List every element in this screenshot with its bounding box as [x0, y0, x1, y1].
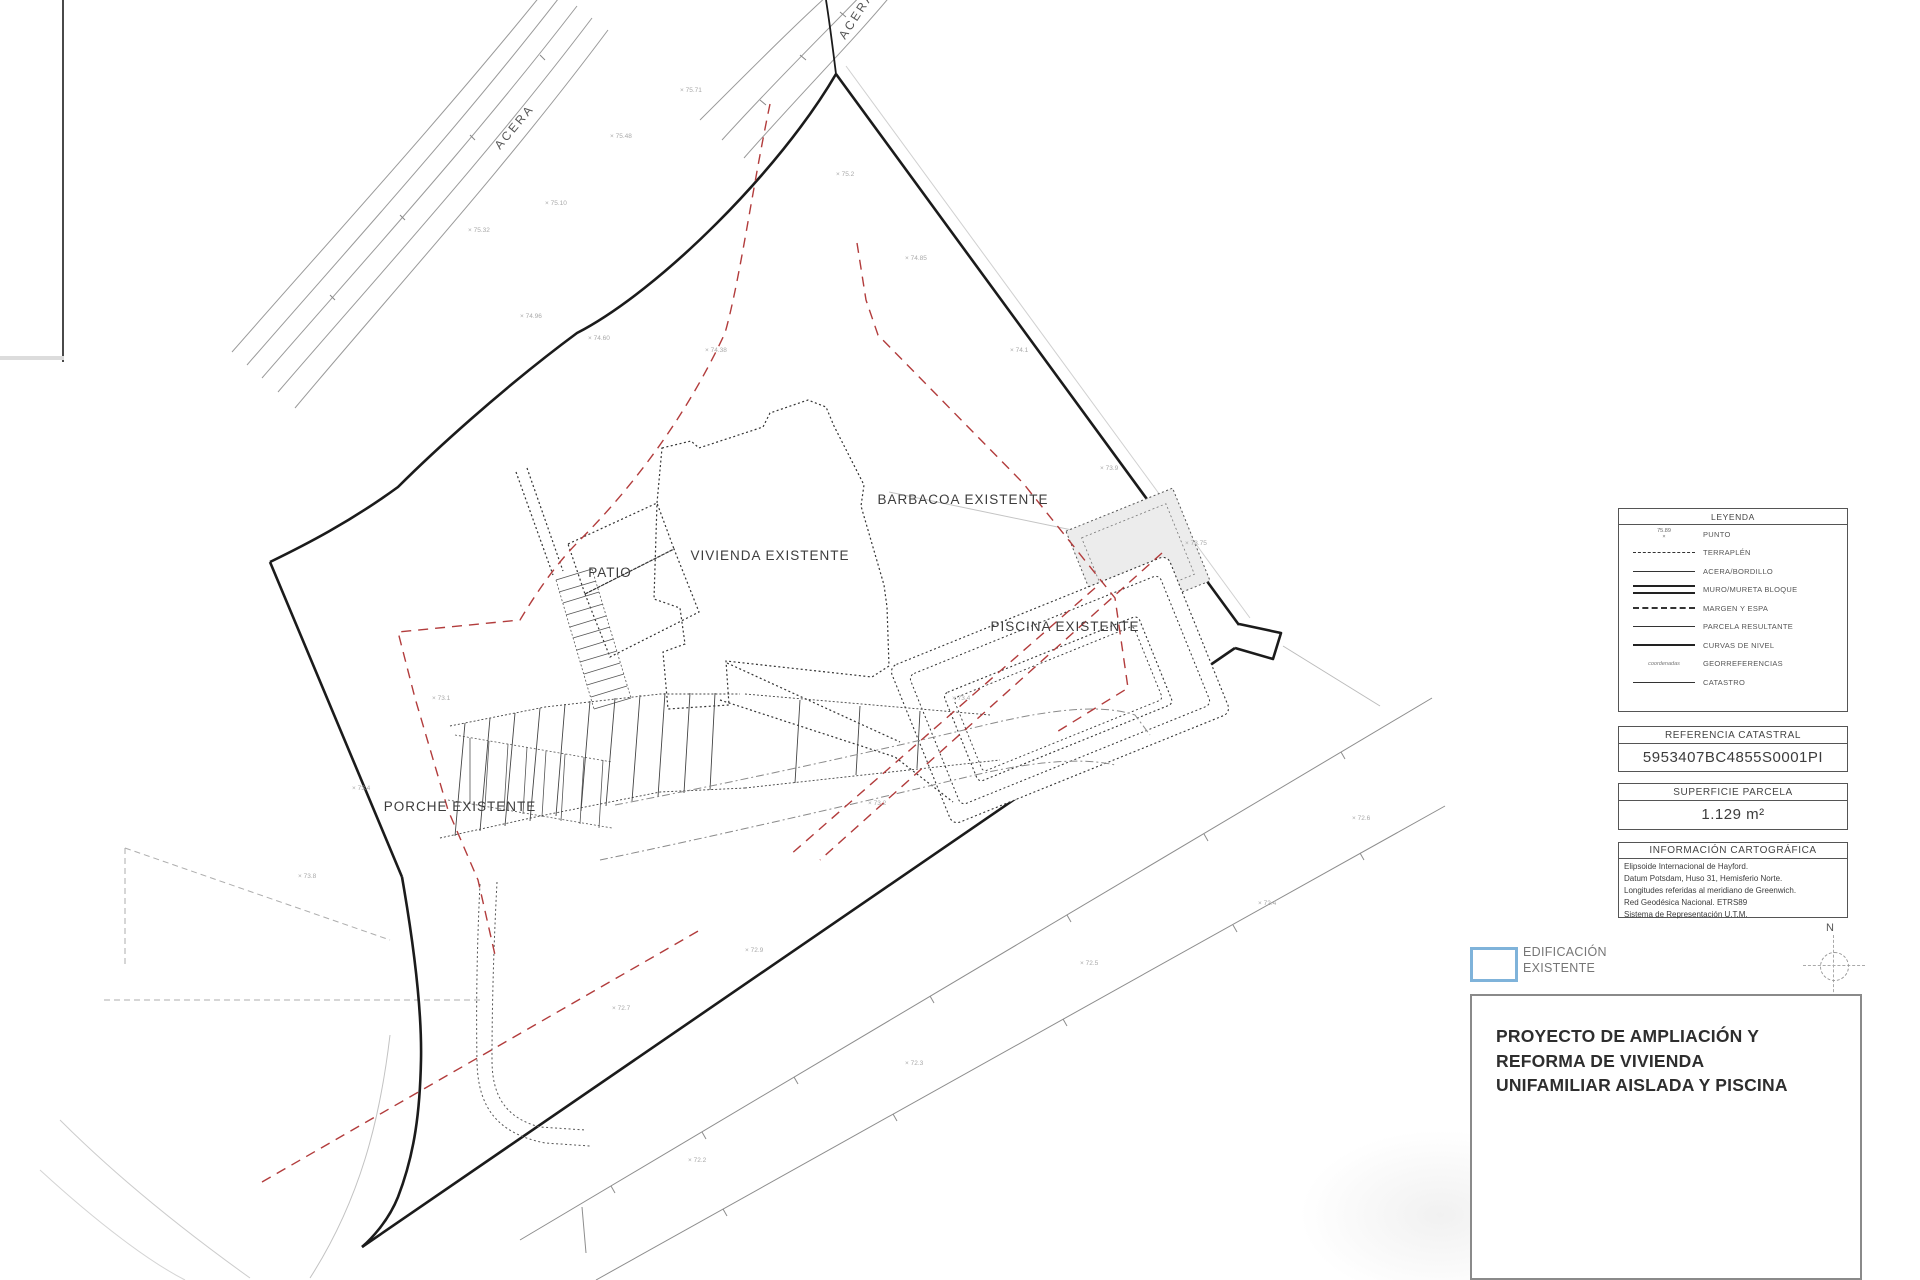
survey-point: × 72.5: [1080, 960, 1099, 967]
survey-point: × 72.2: [688, 1157, 707, 1164]
acera-road-label: ACERA: [492, 102, 537, 152]
north-label: N: [1826, 922, 1834, 934]
stairs-lower: [448, 735, 612, 828]
survey-point: × 72.3: [905, 1060, 924, 1067]
thick-line-symbol: [1633, 644, 1695, 646]
plan-sheet: × 75.32× 75.10× 75.48× 75.71× 74.96× 74.…: [0, 0, 1920, 1280]
survey-point: × 72.9: [745, 947, 764, 954]
survey-point: × 75.2: [836, 171, 855, 178]
survey-point: × 73.9: [1100, 465, 1119, 472]
legend-row-punto: 75.89× PUNTO: [1619, 525, 1847, 544]
cartografia-lines: Elipsoide Internacional de Hayford. Datu…: [1619, 859, 1847, 923]
legend-box: LEYENDA 75.89× PUNTO TERRAPLÉN ACERA/BOR…: [1618, 508, 1848, 712]
survey-point: × 75.10: [545, 200, 567, 207]
legend-row-parcela: PARCELA RESULTANTE: [1619, 618, 1847, 637]
cartografia-header: INFORMACIÓN CARTOGRÁFICA: [1619, 843, 1847, 859]
survey-point: × 74.85: [905, 255, 927, 262]
survey-point: × 72.7: [612, 1005, 631, 1012]
cartografia-box: INFORMACIÓN CARTOGRÁFICA Elipsoide Inter…: [1618, 842, 1848, 918]
survey-point: × 73.1: [432, 695, 451, 702]
legend-row-acera: ACERA/BORDILLO: [1619, 562, 1847, 581]
catastral-box: REFERENCIA CATASTRAL 5953407BC4855S0001P…: [1618, 726, 1848, 772]
project-title: PROYECTO DE AMPLIACIÓN Y REFORMA DE VIVI…: [1496, 1024, 1826, 1098]
edificacion-existente-swatch: [1470, 947, 1518, 982]
title-block: PROYECTO DE AMPLIACIÓN Y REFORMA DE VIVI…: [1470, 994, 1862, 1280]
legend-row-muro: MURO/MURETA BLOQUE: [1619, 581, 1847, 600]
legend-row-catastro: CATASTRO: [1619, 673, 1847, 692]
superficie-value: 1.129 m²: [1619, 801, 1847, 827]
superficie-header: SUPERFICIE PARCELA: [1619, 784, 1847, 801]
solid-line-symbol: [1633, 682, 1695, 683]
legend-row-curvas: CURVAS DE NIVEL: [1619, 636, 1847, 655]
survey-point: × 74.96: [520, 313, 542, 320]
survey-point: × 73.2: [868, 800, 887, 807]
thick-dashed-symbol: [1633, 607, 1695, 609]
solid-line-symbol: [1633, 571, 1695, 572]
legend-row-margen: MARGEN Y ESPA: [1619, 599, 1847, 618]
double-line-symbol: [1633, 585, 1695, 594]
edificacion-existente-label: EDIFICACIÓN EXISTENTE: [1523, 944, 1607, 977]
legend-title: LEYENDA: [1619, 509, 1847, 525]
catastral-header: REFERENCIA CATASTRAL: [1619, 727, 1847, 744]
survey-point: × 74.60: [588, 335, 610, 342]
house-vivienda: [516, 400, 953, 802]
survey-point: × 73.8: [298, 873, 317, 880]
legend-row-terraplen: TERRAPLÉN: [1619, 544, 1847, 563]
solid-line-symbol: [1633, 626, 1695, 627]
vivienda-label: VIVIENDA EXISTENTE: [690, 548, 849, 563]
survey-point: × 73.4: [952, 695, 971, 702]
survey-point: × 75.71: [680, 87, 702, 94]
north-compass-icon: [1820, 952, 1849, 981]
survey-point: × 72.4: [1258, 900, 1277, 907]
pool-complex: [867, 488, 1259, 825]
punto-symbol: 75.89×: [1625, 528, 1703, 540]
survey-point: × 73.75: [1185, 540, 1207, 547]
site-plan-drawing: × 75.32× 75.10× 75.48× 75.71× 74.96× 74.…: [0, 0, 1460, 1280]
survey-point: × 72.6: [1352, 815, 1371, 822]
patio-label: PATIO: [588, 565, 632, 580]
survey-point: × 75.32: [468, 227, 490, 234]
survey-point: × 74.38: [705, 347, 727, 354]
porche-label: PORCHE EXISTENTE: [384, 799, 537, 814]
piscina-label: PISCINA EXISTENTE: [990, 619, 1139, 634]
coordinates-text-symbol: coordenadas: [1648, 661, 1680, 667]
superficie-box: SUPERFICIE PARCELA 1.129 m²: [1618, 783, 1848, 830]
legend-row-georref: coordenadas GEORREFERENCIAS: [1619, 655, 1847, 674]
survey-point: × 73.4: [352, 785, 371, 792]
dashed-line-symbol: [1633, 552, 1695, 553]
survey-point: × 75.48: [610, 133, 632, 140]
survey-point: × 74.1: [1010, 347, 1029, 354]
catastral-value: 5953407BC4855S0001PI: [1619, 744, 1847, 770]
barbacoa-label: BARBACOA EXISTENTE: [877, 492, 1048, 507]
